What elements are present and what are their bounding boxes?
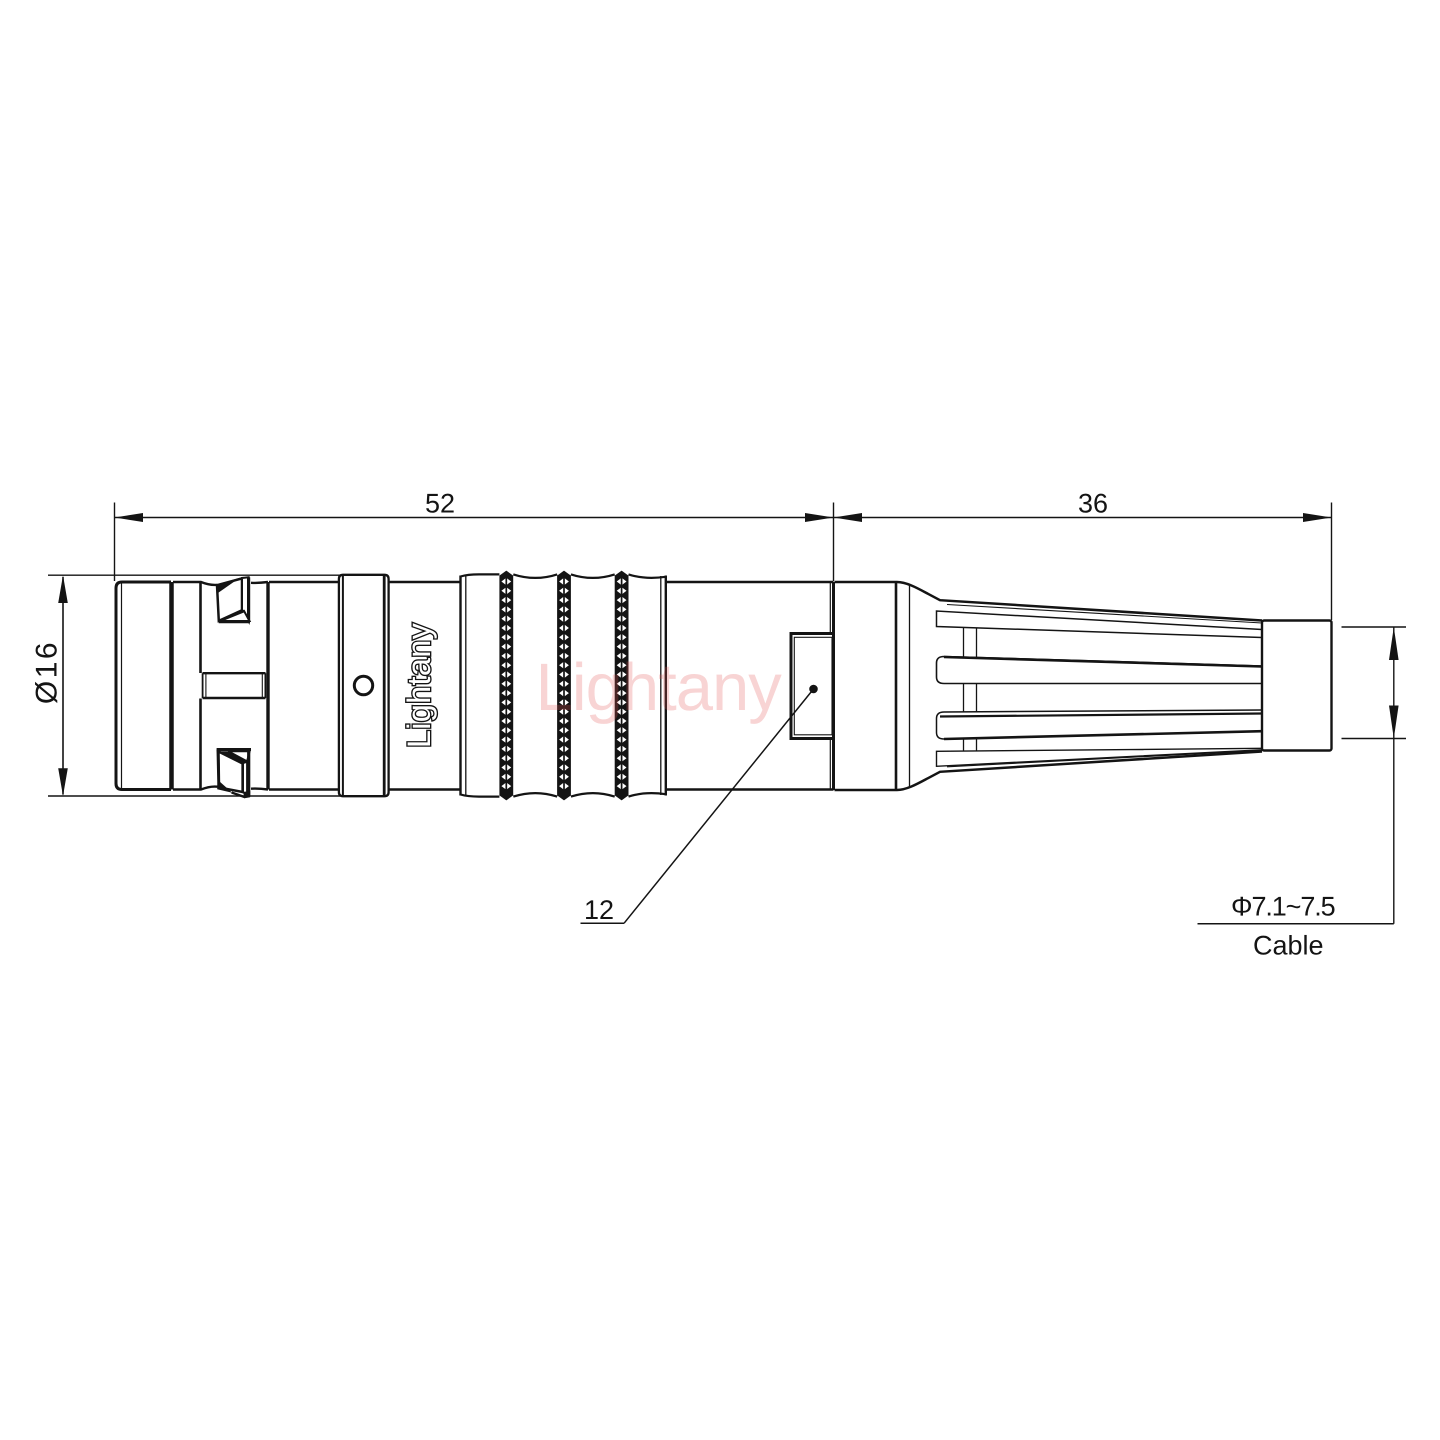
svg-text:36: 36 [1078, 489, 1108, 519]
svg-text:Lightany: Lightany [536, 650, 783, 725]
svg-text:Φ7.1~7.5: Φ7.1~7.5 [1231, 892, 1335, 922]
svg-text:Lightany: Lightany [401, 622, 437, 748]
svg-text:12: 12 [584, 895, 614, 925]
svg-text:Cable: Cable [1253, 931, 1324, 961]
svg-text:52: 52 [425, 489, 455, 519]
svg-text:Ø16: Ø16 [31, 640, 64, 704]
